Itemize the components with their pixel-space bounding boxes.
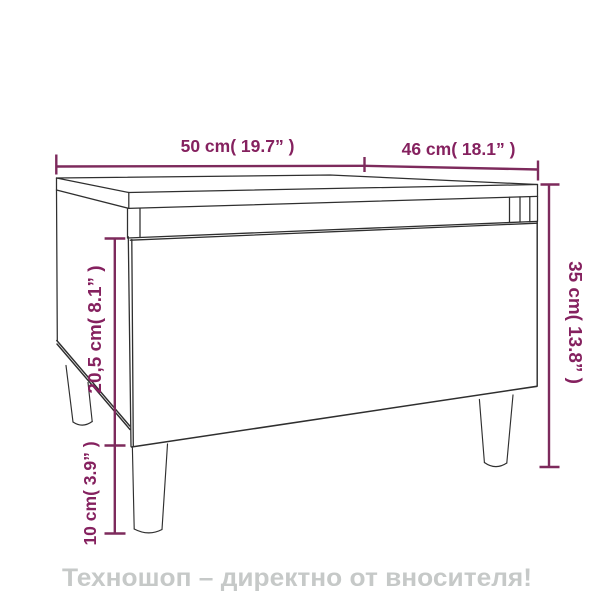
svg-text:10 cm( 3.9” ): 10 cm( 3.9” ) [80,441,100,545]
svg-text:35 cm( 13.8” ): 35 cm( 13.8” ) [564,261,585,384]
svg-text:20,5 cm( 8.1” ): 20,5 cm( 8.1” ) [85,265,106,393]
svg-text:50 cm( 19.7” ): 50 cm( 19.7” ) [181,136,295,156]
svg-text:46 cm( 18.1” ): 46 cm( 18.1” ) [402,139,516,159]
svg-text:Техношоп – директно от вносите: Техношоп – директно от вносителя! [62,564,532,592]
